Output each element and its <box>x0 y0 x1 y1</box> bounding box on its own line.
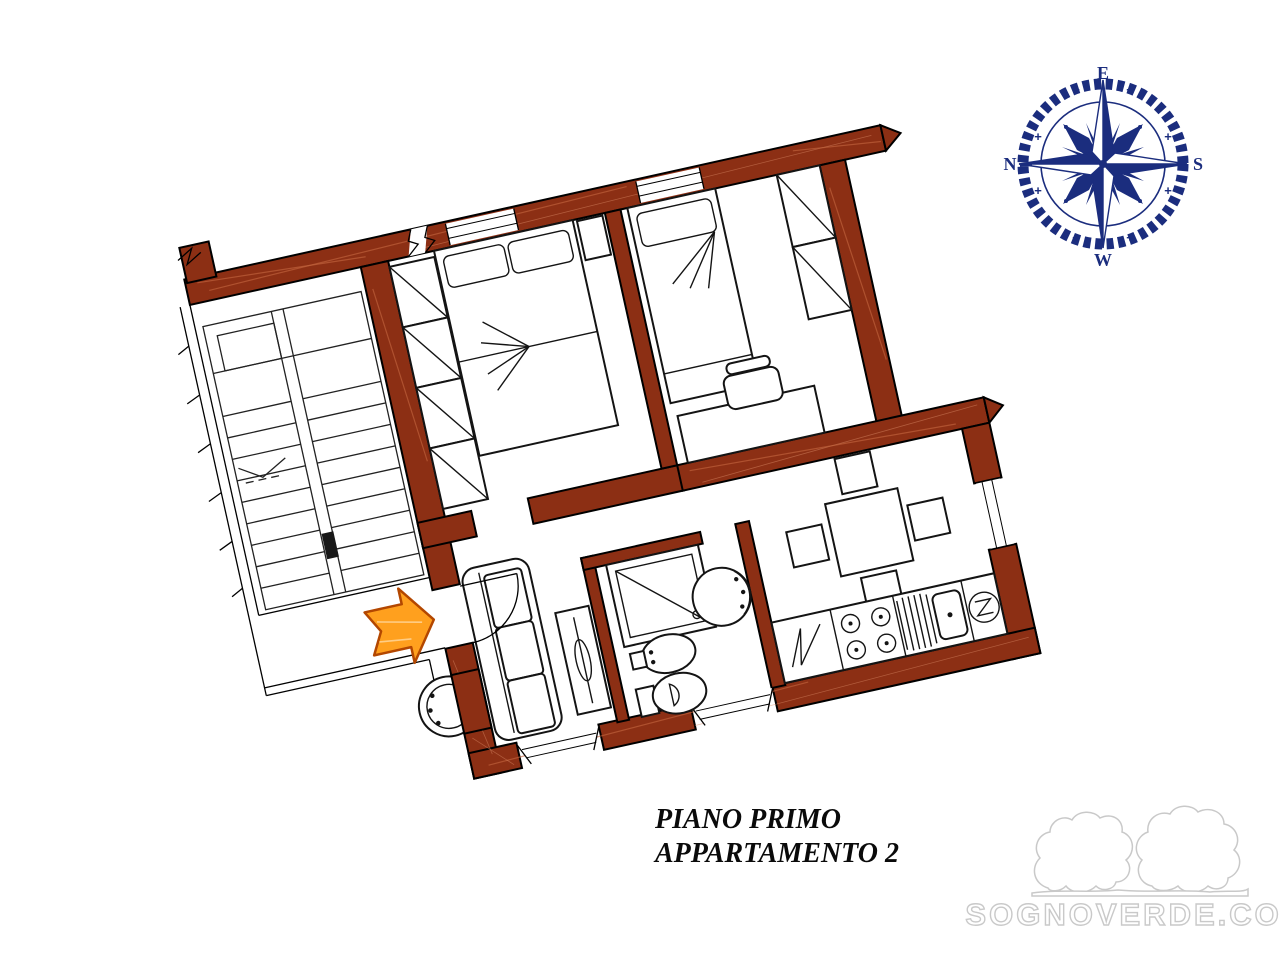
svg-text:+: + <box>1034 183 1042 198</box>
exterior-hatch-ticks <box>175 346 244 597</box>
compass-label-top: E <box>1097 63 1109 83</box>
watermark-logo-trees <box>1032 806 1248 896</box>
watermark: SOGNOVERDE.COM <box>965 806 1280 932</box>
wall-kitchen-right-a <box>962 423 1001 484</box>
floor-plan <box>154 81 1057 821</box>
dining-chair <box>907 498 950 541</box>
floor-plan-svg: ++++ ++++ E S W N <box>0 0 1280 960</box>
svg-text:+: + <box>1164 183 1172 198</box>
stair-hatched-block <box>322 531 339 559</box>
caption-line2: APPARTAMENTO 2 <box>653 838 899 869</box>
wall-stub-top-left <box>179 241 216 283</box>
walls <box>177 81 1057 816</box>
compass-label-right: S <box>1193 154 1203 174</box>
svg-text:+: + <box>1072 230 1080 245</box>
dining-chair <box>835 451 878 494</box>
landing-basin <box>413 669 491 742</box>
watermark-text: SOGNOVERDE.COM <box>965 897 1280 932</box>
svg-text:+: + <box>1126 230 1134 245</box>
compass-label-bottom: W <box>1094 250 1112 270</box>
caption-line1: PIANO PRIMO <box>654 804 841 835</box>
floor-plan-page: ++++ ++++ E S W N <box>0 0 1280 960</box>
svg-text:+: + <box>1034 129 1042 144</box>
caption: PIANO PRIMO APPARTAMENTO 2 <box>653 804 899 869</box>
svg-text:+: + <box>1164 129 1172 144</box>
compass-label-left: N <box>1004 154 1017 174</box>
dining-chair <box>786 524 829 567</box>
wall-bed1-bottom-b <box>528 465 684 524</box>
svg-text:+: + <box>1126 82 1134 97</box>
compass-rose: ++++ ++++ E S W N <box>1004 63 1204 270</box>
svg-text:+: + <box>1072 82 1080 97</box>
